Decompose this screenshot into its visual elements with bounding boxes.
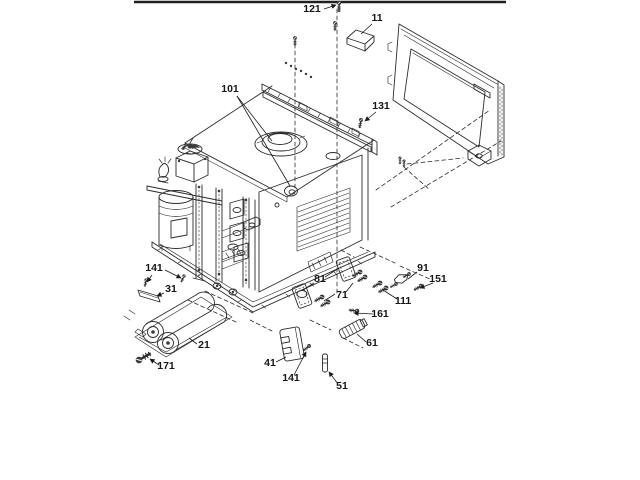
- terminal-block-61: [338, 317, 368, 339]
- bracket-41: [279, 327, 304, 362]
- part-callout-61: 61: [366, 337, 378, 349]
- part-callout-81: 81: [314, 273, 326, 285]
- part-callout-111: 111: [395, 295, 412, 307]
- panel-alignment-lines: [376, 110, 501, 207]
- part-callout-151: 151: [429, 273, 447, 285]
- screw-141-lower: [303, 344, 312, 352]
- cover-plate-81-right: [336, 256, 357, 281]
- ground-clip-91: [390, 272, 411, 289]
- part-callout-121: 121: [303, 3, 321, 15]
- chassis-assembly: [147, 62, 377, 312]
- wrapper-panel: [388, 24, 504, 166]
- screw-171: [134, 350, 152, 364]
- part-callout-41: 41: [264, 357, 276, 369]
- blower-assembly-21: [135, 292, 232, 357]
- panel-foot-lower: [468, 145, 491, 166]
- part-callout-161: 161: [371, 308, 389, 320]
- fan-impeller: [178, 138, 202, 155]
- part-callout-11: 11: [371, 12, 382, 24]
- part-callout-31: 31: [165, 283, 177, 295]
- screw-161: [349, 308, 359, 313]
- part-callout-21: 21: [198, 339, 210, 351]
- exploded-parts-diagram: 1211110113114131211714114151611617181111…: [0, 0, 640, 480]
- front-frame-columns: [193, 184, 255, 290]
- oven-lamp: [158, 157, 171, 183]
- fan-motor: [176, 138, 208, 182]
- part-callout-51: 51: [336, 380, 348, 392]
- part-callout-141: 141: [145, 262, 163, 274]
- panel-foot-upper: [474, 84, 490, 98]
- stirrer-cover: [255, 132, 307, 156]
- cylinder-housing: [159, 191, 193, 252]
- part-callout-71: 71: [336, 289, 348, 301]
- part-callout-171: 171: [157, 360, 175, 372]
- vent-grille: [297, 188, 350, 251]
- spacer-pin-51: [323, 354, 328, 372]
- part-callout-131: 131: [372, 100, 390, 112]
- shelf-edge: [147, 186, 222, 205]
- part-callout-91: 91: [417, 262, 429, 274]
- part-callout-101: 101: [221, 83, 239, 95]
- part-callout-141: 141: [282, 372, 300, 384]
- cabinet-bracket-11: [347, 30, 374, 51]
- mounting-bracket-31: [124, 290, 160, 320]
- panel-screws-131-group: [358, 118, 406, 168]
